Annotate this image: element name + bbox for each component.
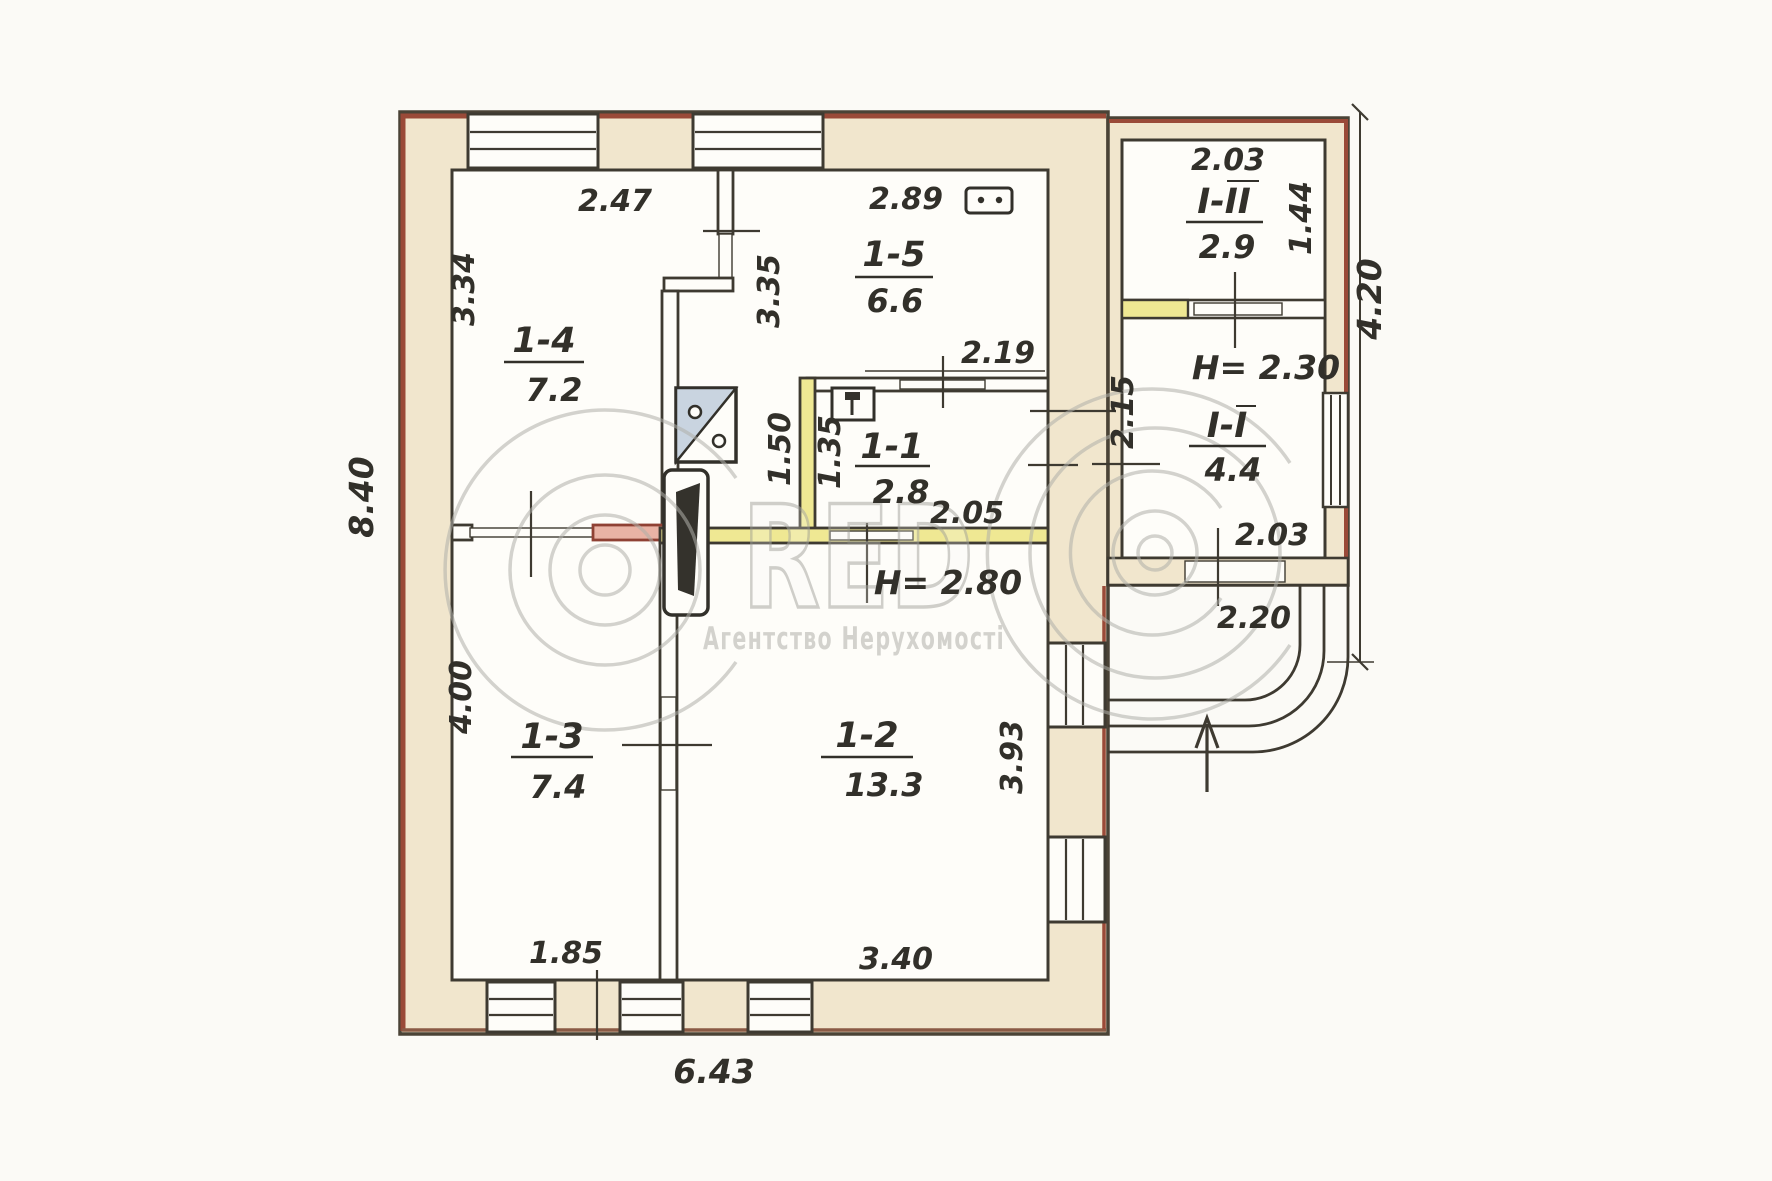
door-opening [719, 234, 732, 280]
room-area: 13.3 [845, 766, 924, 804]
two-burner-stove-icon [966, 188, 1012, 213]
watermark-agency-text: Агентство Нерухомості [703, 621, 1005, 657]
room-id: І-І [1207, 406, 1248, 446]
room-area: 4.4 [1204, 451, 1262, 489]
dim-r15-top: 2.89 [869, 182, 943, 217]
annex-partition-yellow [1122, 300, 1188, 318]
pink-partition [593, 525, 664, 540]
room-area: 2.8 [873, 473, 930, 511]
dim-a2-right: 1.44 [1284, 181, 1319, 255]
room-area: 6.6 [867, 282, 924, 320]
room-id: 1-5 [862, 235, 925, 275]
height-annex: Н= 2.30 [1192, 348, 1340, 387]
height-main: Н= 2.80 [874, 563, 1022, 602]
dim-r11-left: 1.35 [813, 415, 848, 489]
room-area: 7.2 [526, 371, 583, 409]
dim-r13-left: 4.00 [444, 660, 479, 735]
room-label-1-5: 1-5 6.6 [855, 235, 933, 320]
dim-hall-width: 1.50 [763, 412, 798, 486]
dim-a1-left: 2.15 [1106, 375, 1141, 449]
room-area: 2.9 [1199, 228, 1256, 266]
door-opening [1194, 303, 1282, 315]
dim-r14-left: 3.34 [447, 252, 482, 326]
room-id: 1-1 [860, 427, 923, 467]
dim-a1-bottom: 2.03 [1235, 518, 1309, 553]
dim-r13-bottom: 1.85 [529, 936, 603, 971]
room-id: 1-2 [835, 716, 898, 756]
dim-outer-bottom: 6.43 [673, 1052, 754, 1091]
door-opening [661, 697, 676, 790]
room-id: 1-3 [520, 717, 583, 757]
floor-plan-page: RED Агентство Нерухомості 1-4 7.2 1-5 6.… [0, 0, 1772, 1181]
windows-bottom-wall [487, 982, 812, 1032]
stove-icon [676, 388, 736, 462]
room-id: 1-4 [512, 321, 575, 361]
dim-a2-top: 2.03 [1191, 143, 1265, 178]
dim-outer-left: 8.40 [342, 456, 381, 537]
dim-annex-right-total: 4.20 [1350, 258, 1389, 340]
dim-r11-top: 2.19 [961, 336, 1035, 371]
heating-furnace-icon [664, 470, 708, 615]
room-id: І-ІІ [1197, 182, 1251, 222]
floor-plan-svg: RED Агентство Нерухомості 1-4 7.2 1-5 6.… [0, 0, 1772, 1181]
room-area: 7.4 [530, 768, 587, 806]
dim-r12-right: 3.93 [995, 720, 1030, 794]
dim-r14-top: 2.47 [578, 184, 652, 219]
window [1323, 393, 1348, 507]
dim-r12-bottom: 3.40 [859, 942, 933, 977]
dim-hall-length: 3.35 [752, 254, 787, 328]
dim-porch-bottom: 2.20 [1217, 601, 1291, 636]
dim-r11-bottom: 2.05 [930, 496, 1004, 531]
entrance-door-opening [1185, 561, 1285, 582]
